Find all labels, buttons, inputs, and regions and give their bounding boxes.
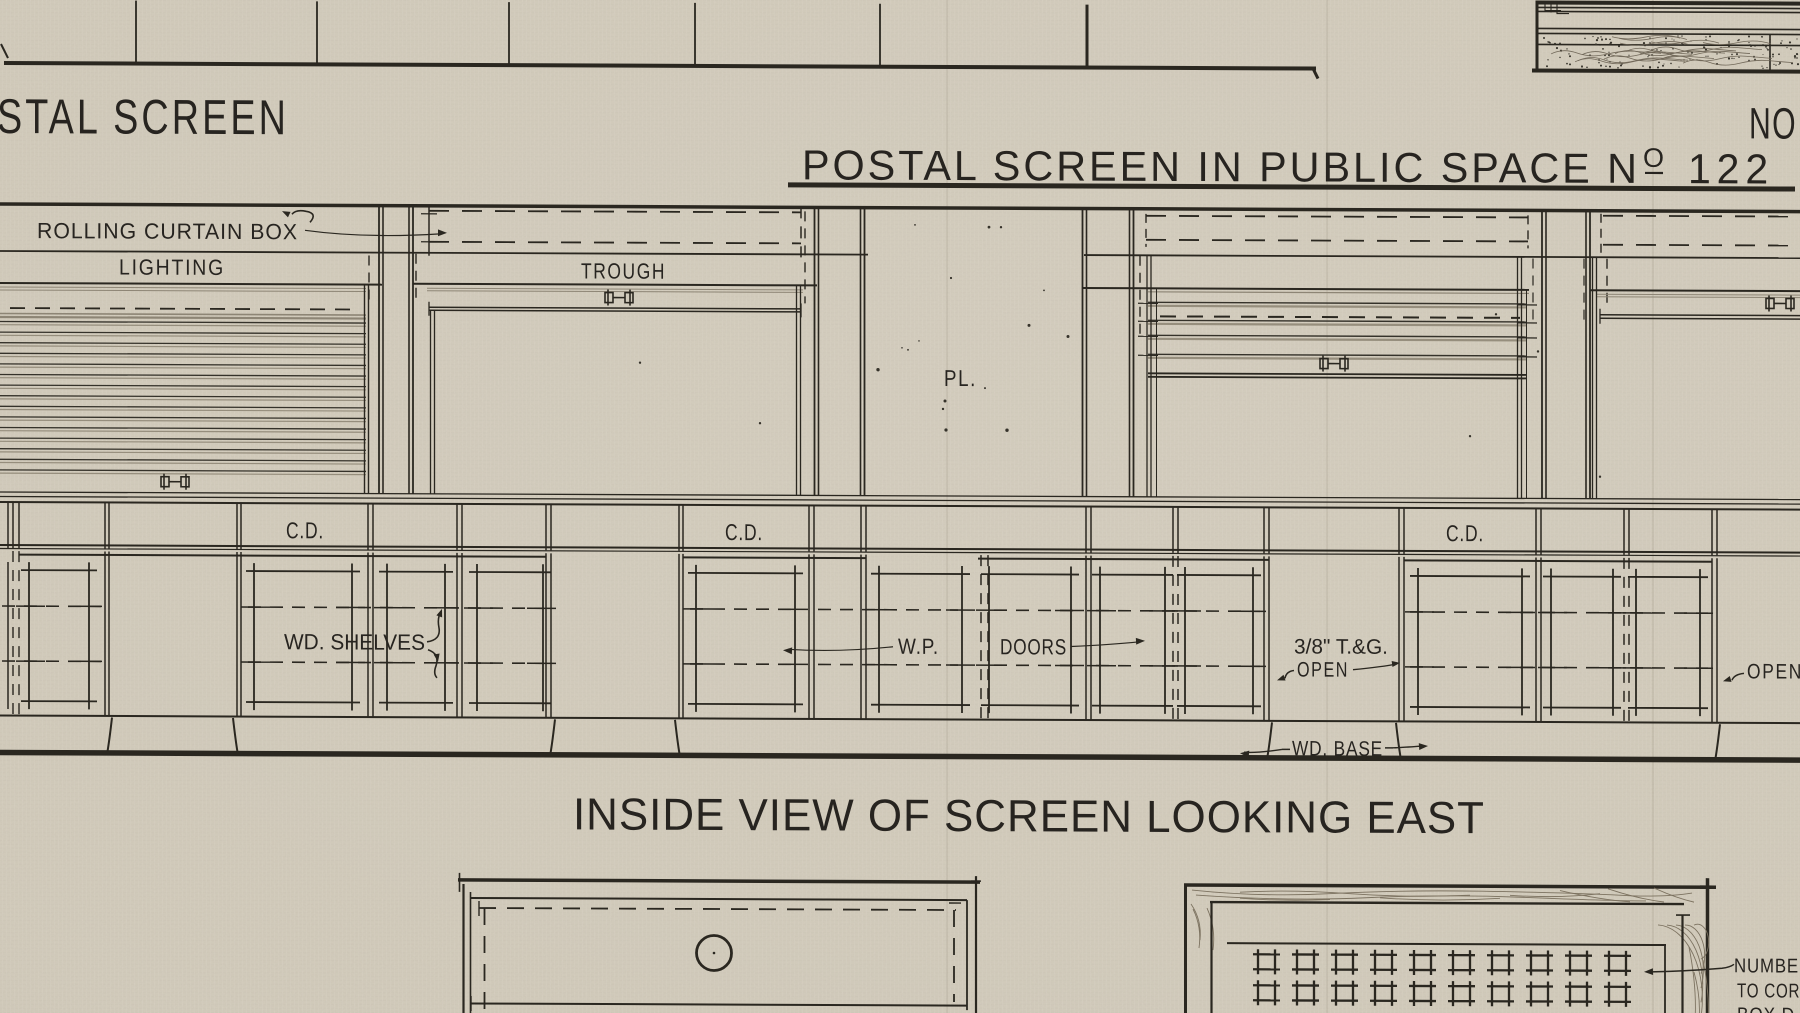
svg-text:INSIDE VIEW OF SCREEN LOOKING: INSIDE VIEW OF SCREEN LOOKING EAST — [573, 788, 1485, 843]
svg-text:TO CORR: TO CORR — [1737, 980, 1800, 1002]
svg-text:C.D.: C.D. — [286, 517, 324, 543]
svg-text:C.D.: C.D. — [725, 519, 763, 545]
svg-text:OPEN: OPEN — [1297, 658, 1349, 681]
svg-text:WD. SHELVES: WD. SHELVES — [284, 629, 425, 655]
svg-text:PL.: PL. — [944, 365, 977, 391]
svg-text:C.D.: C.D. — [1446, 520, 1484, 546]
svg-text:3/8" T.&G.: 3/8" T.&G. — [1294, 635, 1388, 658]
svg-text:122: 122 — [1688, 145, 1774, 192]
svg-text:NUMBER: NUMBER — [1734, 955, 1800, 977]
svg-text:TROUGH: TROUGH — [581, 258, 666, 283]
svg-text:STAL SCREEN: STAL SCREEN — [0, 90, 289, 145]
svg-text:ROLLING CURTAIN BOX: ROLLING CURTAIN BOX — [37, 218, 298, 244]
svg-text:OPEN: OPEN — [1747, 660, 1800, 683]
svg-text:O: O — [1643, 143, 1664, 173]
svg-text:LIGHTING: LIGHTING — [119, 255, 225, 280]
svg-text:BOX D: BOX D — [1737, 1004, 1795, 1013]
svg-text:W.P.: W.P. — [898, 634, 939, 659]
svg-text:NO: NO — [1749, 99, 1797, 148]
svg-text:DOORS: DOORS — [1000, 634, 1067, 659]
